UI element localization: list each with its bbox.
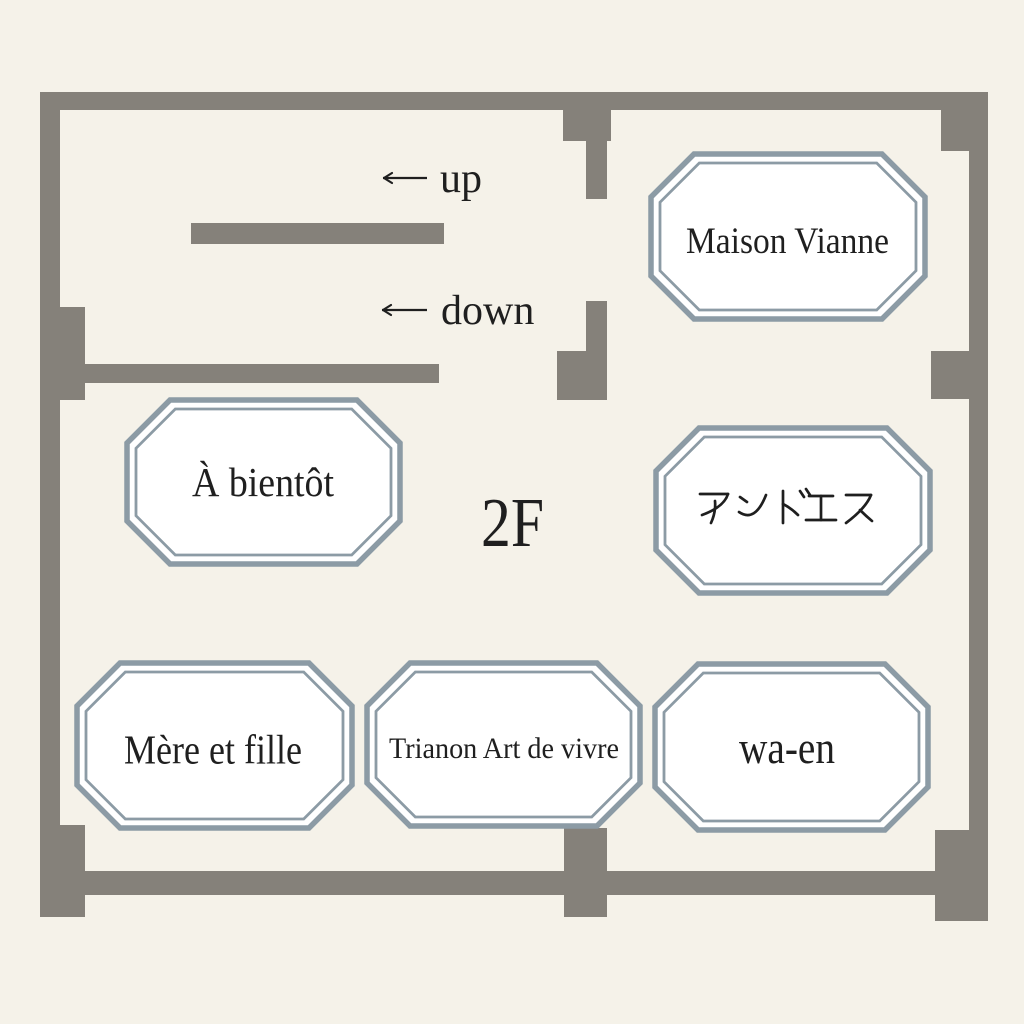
svg-text:2F: 2F	[481, 485, 544, 562]
svg-text:Trianon Art de vivre: Trianon Art de vivre	[389, 733, 619, 765]
svg-text:wa-en: wa-en	[739, 723, 835, 773]
svg-text:up: up	[440, 156, 482, 202]
svg-text:Mère et fille: Mère et fille	[124, 727, 302, 773]
svg-text:Maison Vianne: Maison Vianne	[686, 221, 889, 262]
svg-text:down: down	[441, 288, 534, 334]
svg-text:À bientôt: À bientôt	[192, 459, 335, 505]
